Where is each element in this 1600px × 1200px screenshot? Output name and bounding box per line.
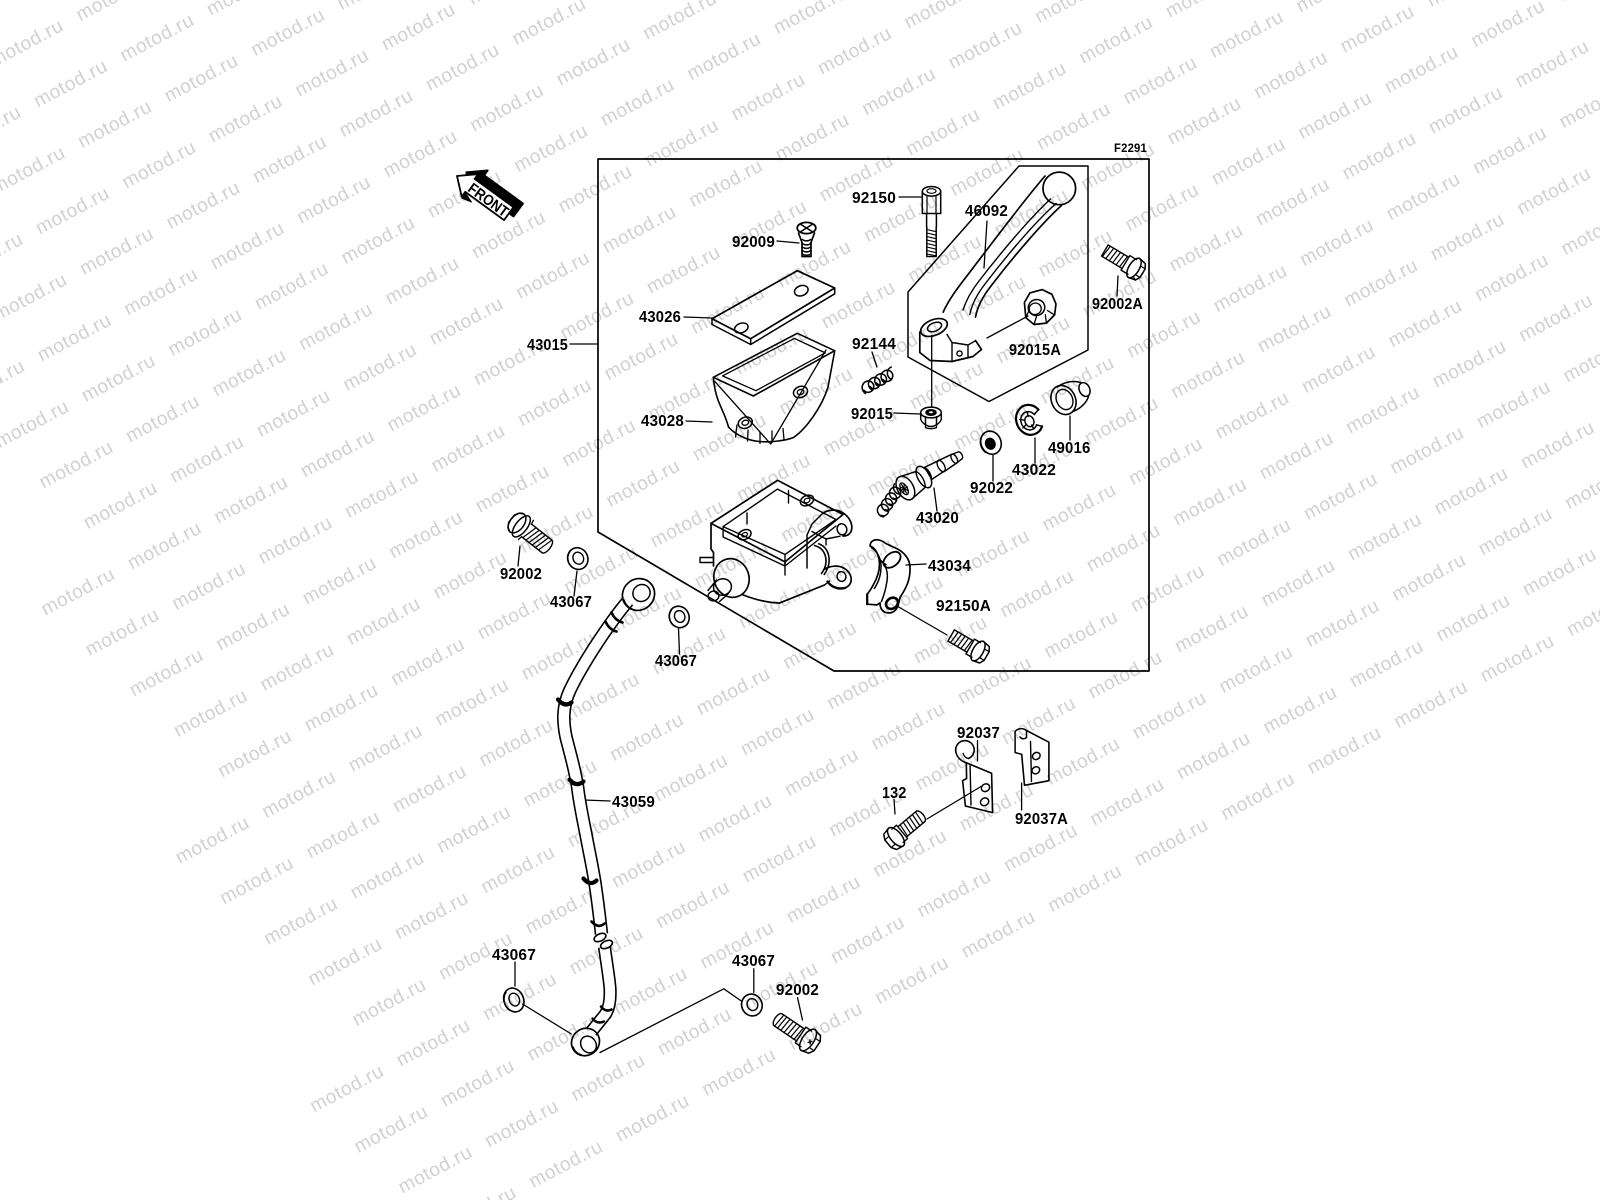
svg-text:92015A: 92015A — [1009, 342, 1061, 359]
svg-text:92002: 92002 — [500, 566, 542, 583]
svg-text:92144: 92144 — [852, 336, 896, 353]
svg-text:43067: 43067 — [655, 653, 697, 670]
svg-text:43067: 43067 — [550, 594, 592, 611]
svg-text:92002: 92002 — [776, 982, 819, 999]
svg-text:43067: 43067 — [492, 947, 536, 964]
svg-text:46092: 46092 — [965, 203, 1008, 220]
svg-text:92022: 92022 — [970, 480, 1013, 497]
svg-text:92150: 92150 — [852, 190, 896, 207]
svg-text:43034: 43034 — [928, 558, 971, 575]
svg-text:43067: 43067 — [732, 953, 775, 970]
svg-text:43026: 43026 — [639, 309, 681, 326]
svg-text:92015: 92015 — [851, 406, 893, 423]
svg-text:43015: 43015 — [527, 337, 568, 354]
svg-text:92002A: 92002A — [1092, 296, 1143, 313]
svg-text:43020: 43020 — [916, 510, 959, 527]
svg-text:43022: 43022 — [1012, 462, 1056, 479]
svg-text:43028: 43028 — [641, 413, 684, 430]
svg-text:43059: 43059 — [612, 794, 655, 811]
svg-text:49016: 49016 — [1048, 440, 1091, 457]
svg-text:92037A: 92037A — [1015, 811, 1068, 828]
svg-text:92150A: 92150A — [936, 598, 991, 615]
svg-text:92009: 92009 — [732, 234, 775, 251]
svg-text:F2291: F2291 — [1114, 141, 1147, 155]
svg-text:92037: 92037 — [957, 725, 1000, 742]
